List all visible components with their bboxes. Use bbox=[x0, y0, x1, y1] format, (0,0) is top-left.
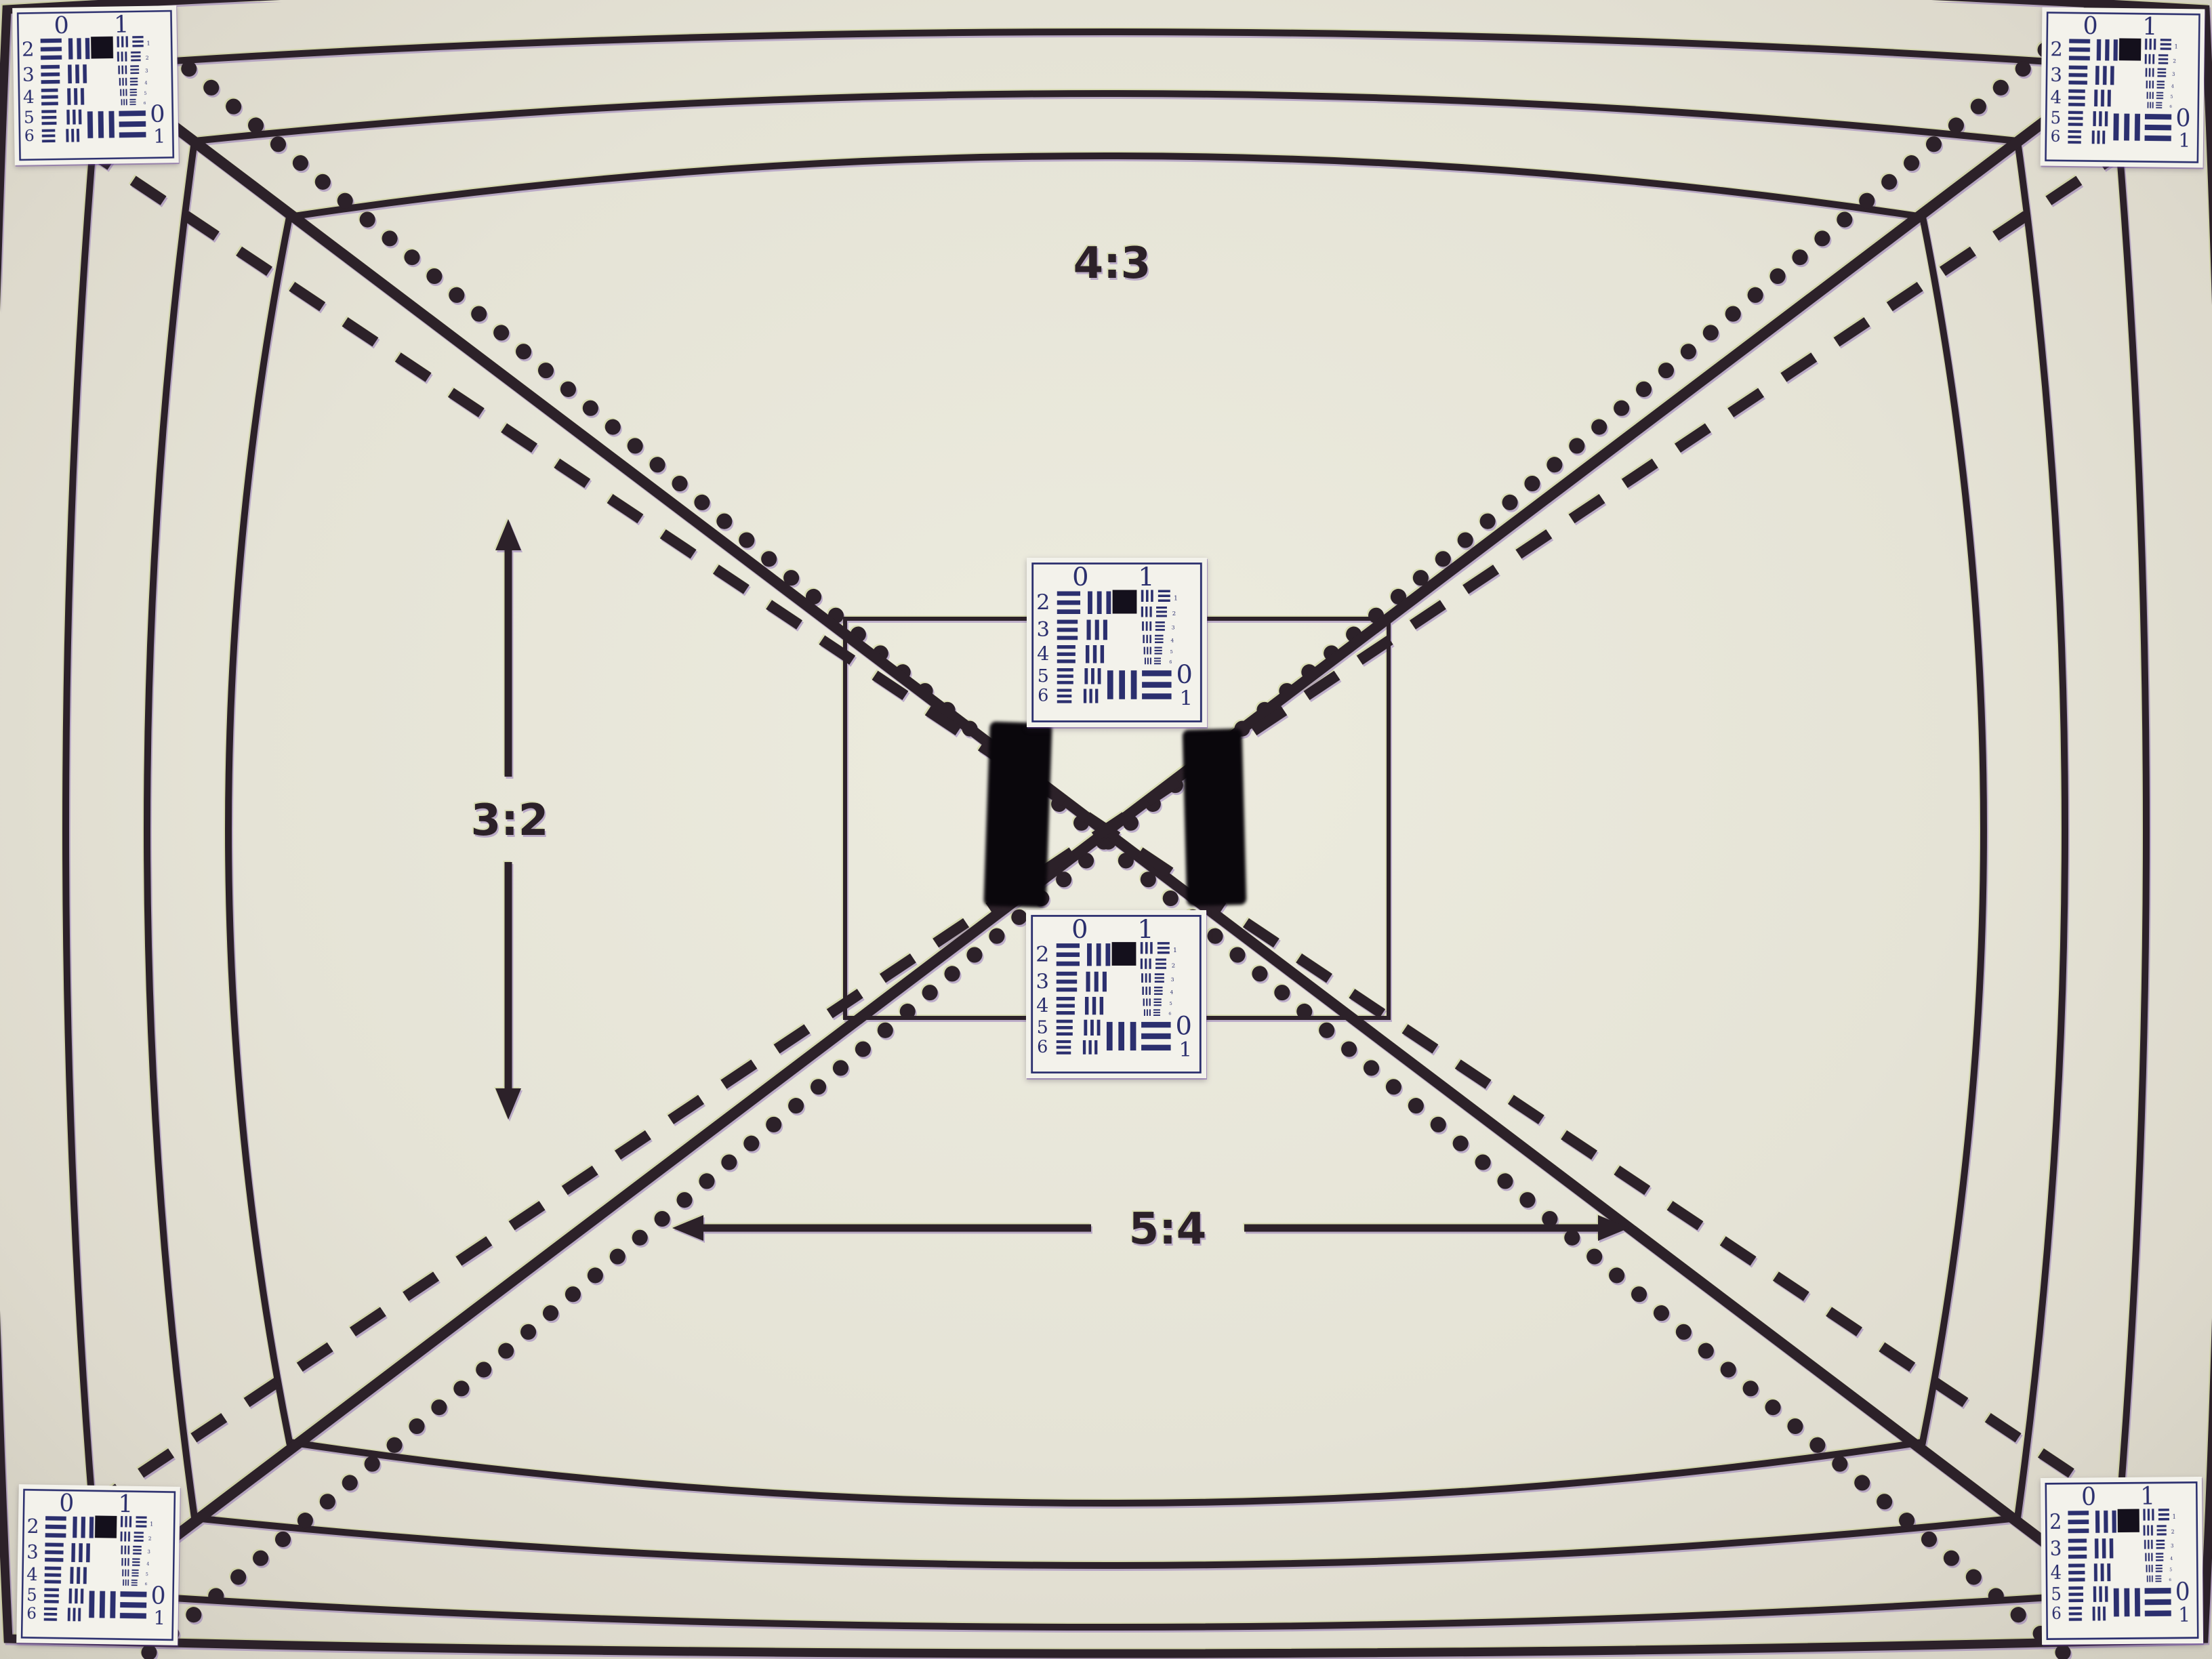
aspect-label-4-3: 4:3 bbox=[1073, 239, 1151, 289]
velcro-pad-left bbox=[983, 721, 1052, 907]
usaf-card-top-left bbox=[12, 5, 179, 165]
usaf-card-center-top bbox=[1027, 558, 1207, 727]
usaf-card-center-bottom bbox=[1026, 910, 1206, 1078]
usaf-card-bottom-left bbox=[16, 1484, 180, 1645]
chart-geometry: 0 1 2 3 4 5 bbox=[0, 0, 2212, 1659]
usaf-card-top-right bbox=[2041, 7, 2205, 168]
aspect-label-3-2: 3:2 bbox=[471, 796, 549, 846]
velcro-pad-right bbox=[1183, 729, 1247, 906]
usaf-card-bottom-right bbox=[2041, 1477, 2203, 1645]
test-chart-photo: 0 1 2 3 4 5 bbox=[0, 0, 2212, 1659]
diagonal-dashed-tr-bl bbox=[79, 145, 2132, 1515]
aspect-label-5-4: 5:4 bbox=[1129, 1204, 1207, 1254]
